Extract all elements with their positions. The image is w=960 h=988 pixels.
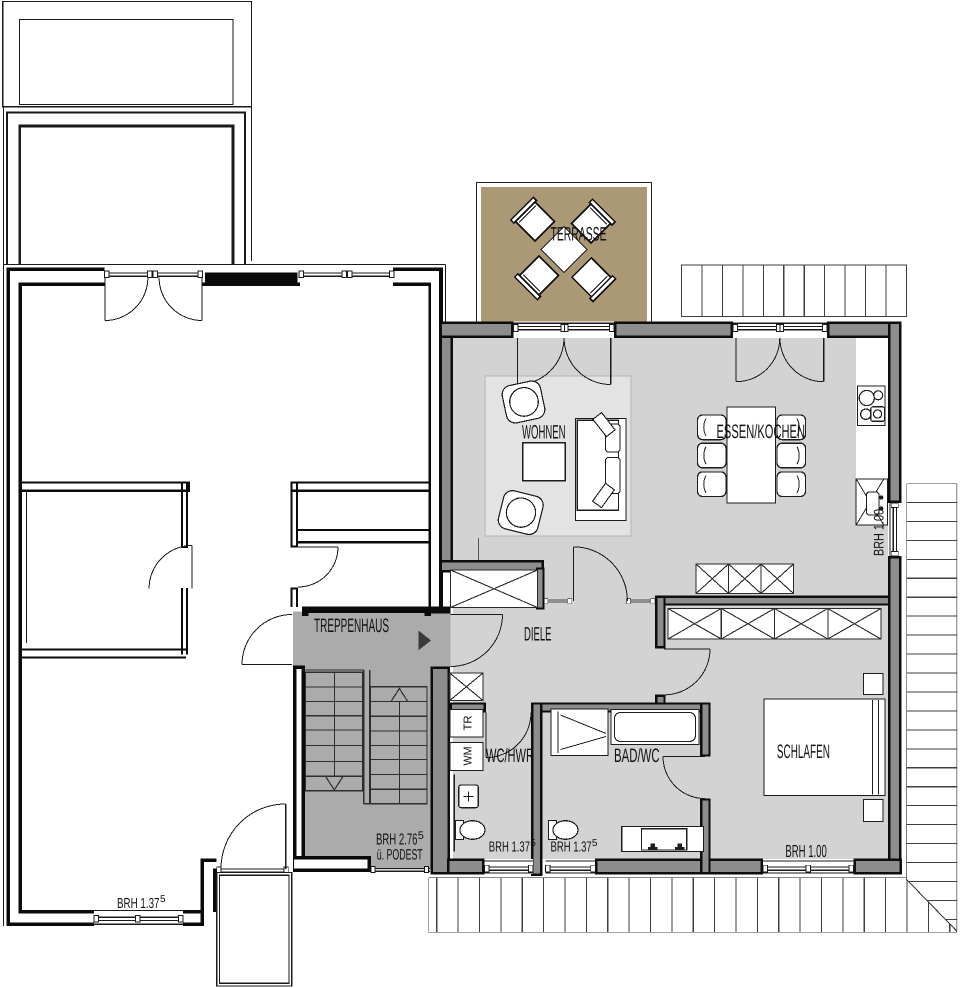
svg-text:DIELE: DIELE	[524, 624, 552, 646]
svg-text:WOHNEN: WOHNEN	[522, 421, 566, 443]
svg-text:BRH 1.37: BRH 1.37	[489, 839, 530, 855]
svg-text:5: 5	[530, 838, 536, 849]
svg-text:5: 5	[160, 894, 166, 905]
svg-text:BRH 1.00: BRH 1.00	[785, 841, 827, 861]
svg-text:BAD/WC: BAD/WC	[614, 745, 660, 767]
svg-text:BRH 1.37: BRH 1.37	[551, 839, 592, 855]
svg-text:SCHLAFEN: SCHLAFEN	[777, 741, 830, 763]
svg-text:TR: TR	[463, 716, 475, 731]
svg-text:ü. PODEST: ü. PODEST	[377, 847, 423, 864]
svg-text:TERRASSE: TERRASSE	[551, 224, 607, 246]
svg-text:BRH 1.00: BRH 1.00	[871, 509, 887, 556]
svg-text:WM: WM	[463, 747, 475, 766]
svg-text:BRH 1.37: BRH 1.37	[117, 896, 160, 912]
svg-text:ESSEN/KOCHEN: ESSEN/KOCHEN	[717, 421, 806, 443]
svg-text:5: 5	[418, 830, 424, 842]
svg-text:WC/HWR: WC/HWR	[486, 745, 534, 767]
svg-text:TREPPENHAUS: TREPPENHAUS	[314, 615, 389, 637]
svg-text:5: 5	[592, 838, 598, 849]
